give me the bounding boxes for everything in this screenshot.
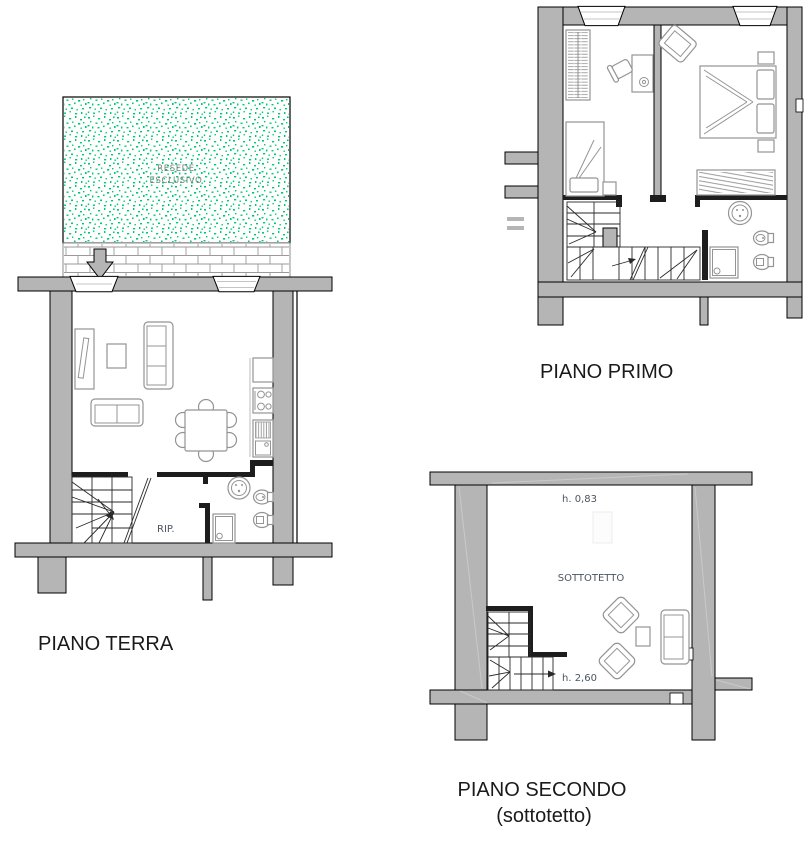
desk-chair <box>607 57 634 83</box>
armchair <box>597 641 637 681</box>
sofa-three-seat <box>144 322 173 389</box>
garden-label-line2: ESCLUSIVO <box>150 176 203 186</box>
stair-direction-arrow <box>514 671 556 678</box>
first-floor-staircase <box>567 202 700 280</box>
height-annotation-bottom: h. 2,60 <box>562 673 597 684</box>
skylight <box>593 512 612 543</box>
double-bed <box>700 52 776 152</box>
floor-plan-document: RESEDE ESCLUSIVO <box>0 0 807 850</box>
bedroom1-furniture <box>566 30 653 196</box>
wardrobe <box>697 170 775 195</box>
height-annotation-top: h. 0,83 <box>562 494 597 505</box>
storage-label: RIP. <box>157 524 175 535</box>
toilet <box>254 513 274 528</box>
toilet <box>754 255 774 270</box>
dining-table <box>176 400 237 462</box>
single-bed <box>566 122 616 196</box>
garden-label-line1: RESEDE <box>157 164 195 174</box>
stove <box>253 388 273 413</box>
bidet <box>254 490 274 504</box>
second-floor-title: PIANO SECONDO <box>458 779 627 801</box>
kitchen-sink <box>253 420 273 457</box>
ground-floor-plan: RESEDE ESCLUSIVO <box>15 97 332 655</box>
second-floor-subtitle: (sottotetto) <box>496 805 592 827</box>
wardrobe-hangers <box>566 30 590 100</box>
floor-plan-page: RESEDE ESCLUSIVO <box>0 0 807 850</box>
armchair <box>657 24 697 64</box>
second-floor-plan: h. 0,83 SOTTOTETTO h. 2,60 PIANO SECONDO… <box>430 472 752 827</box>
side-table <box>107 344 126 368</box>
first-floor-title: PIANO PRIMO <box>540 361 673 383</box>
attic-room-label: SOTTOTETTO <box>558 573 625 584</box>
bidet <box>754 231 774 245</box>
desk <box>632 55 653 92</box>
round-sink <box>729 202 752 225</box>
second-floor-walls <box>430 472 752 740</box>
round-sink <box>228 477 250 499</box>
garden-area: RESEDE ESCLUSIVO <box>63 97 290 279</box>
first-floor-plan: PIANO PRIMO <box>505 6 803 383</box>
attic-staircase <box>488 612 556 690</box>
living-room-furniture <box>75 322 237 462</box>
cabinet <box>75 329 94 389</box>
shower <box>213 514 235 543</box>
kitchen-cabinet <box>253 358 273 382</box>
shower <box>710 247 738 278</box>
ground-floor-title: PIANO TERRA <box>38 633 174 655</box>
ground-floor-bathroom <box>213 477 273 543</box>
attic-furniture <box>597 595 689 681</box>
ground-floor-walls <box>15 276 332 600</box>
bedroom2-furniture <box>657 24 776 195</box>
side-table <box>636 627 650 646</box>
armchair <box>601 595 641 635</box>
sofa-two-seat <box>91 399 143 426</box>
ground-floor-staircase <box>72 477 151 543</box>
kitchen-units <box>250 358 273 457</box>
sofa <box>661 610 689 664</box>
first-floor-bathroom <box>710 202 774 279</box>
